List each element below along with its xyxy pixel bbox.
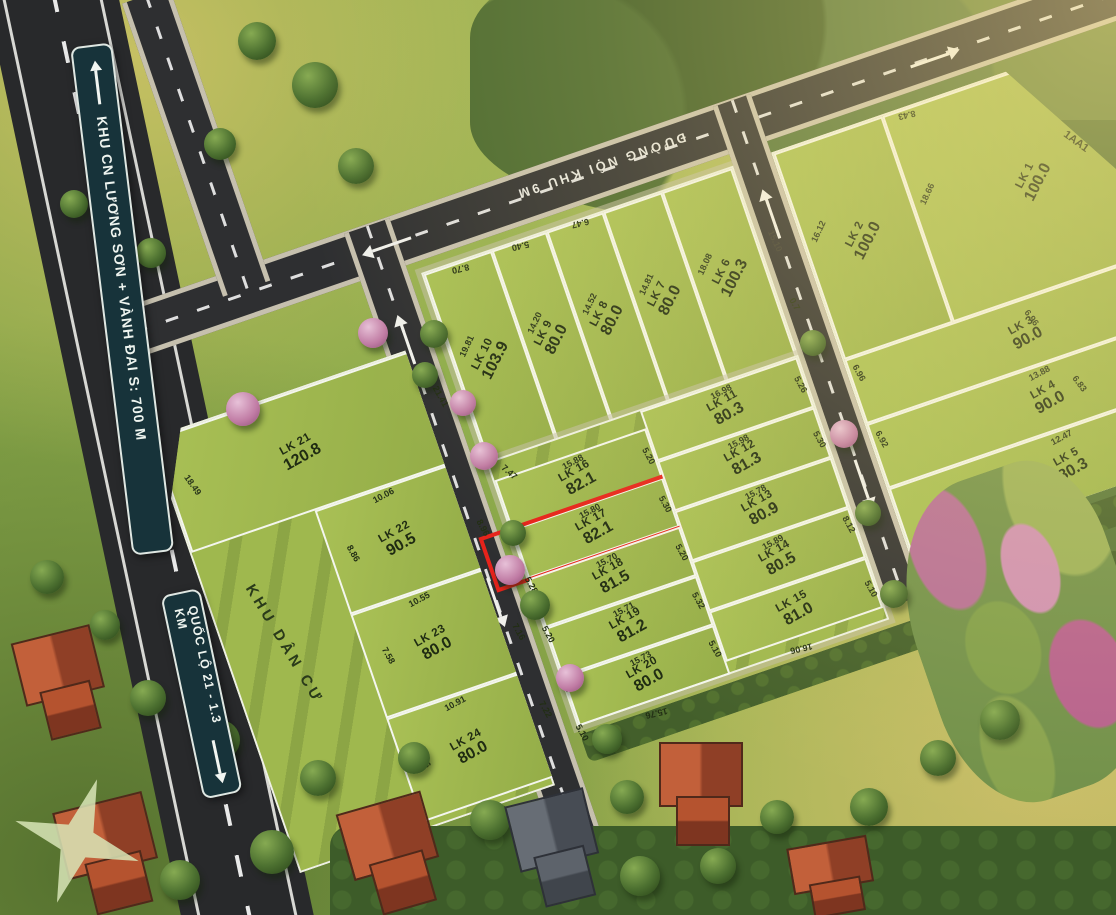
tree xyxy=(700,848,736,884)
tree xyxy=(620,856,660,896)
tree xyxy=(130,680,166,716)
tree xyxy=(610,780,644,814)
masterplan-map: ĐƯỜNG NỘI KHU 9M LK 21120.8 18.49 LK 229… xyxy=(0,0,1116,915)
sign-arrow-down-icon xyxy=(208,739,229,785)
tree xyxy=(292,62,338,108)
tree xyxy=(520,590,550,620)
tree xyxy=(60,190,88,218)
tree xyxy=(420,320,448,348)
flower-tree xyxy=(470,442,498,470)
tree xyxy=(855,500,881,526)
flower-tree xyxy=(450,390,476,416)
tree xyxy=(980,700,1020,740)
tree xyxy=(338,148,374,184)
tree xyxy=(300,760,336,796)
flower-tree xyxy=(226,392,260,426)
tree xyxy=(204,128,236,160)
tree xyxy=(30,560,64,594)
tree xyxy=(238,22,276,60)
house xyxy=(782,831,886,915)
tree xyxy=(398,742,430,774)
flower-tree xyxy=(830,420,858,448)
tree xyxy=(500,520,526,546)
tree xyxy=(412,362,438,388)
sign-arrow-up-icon xyxy=(89,60,106,105)
tree xyxy=(760,800,794,834)
residential-area-label: KHU DÂN CƯ xyxy=(242,581,327,707)
flower-tree xyxy=(358,318,388,348)
tree xyxy=(880,580,908,608)
tree xyxy=(850,788,888,826)
house xyxy=(655,738,751,850)
tree xyxy=(800,330,826,356)
flower-tree xyxy=(556,664,584,692)
flower-tree xyxy=(495,555,525,585)
tree xyxy=(250,830,294,874)
tree xyxy=(592,724,622,754)
tree xyxy=(920,740,956,776)
